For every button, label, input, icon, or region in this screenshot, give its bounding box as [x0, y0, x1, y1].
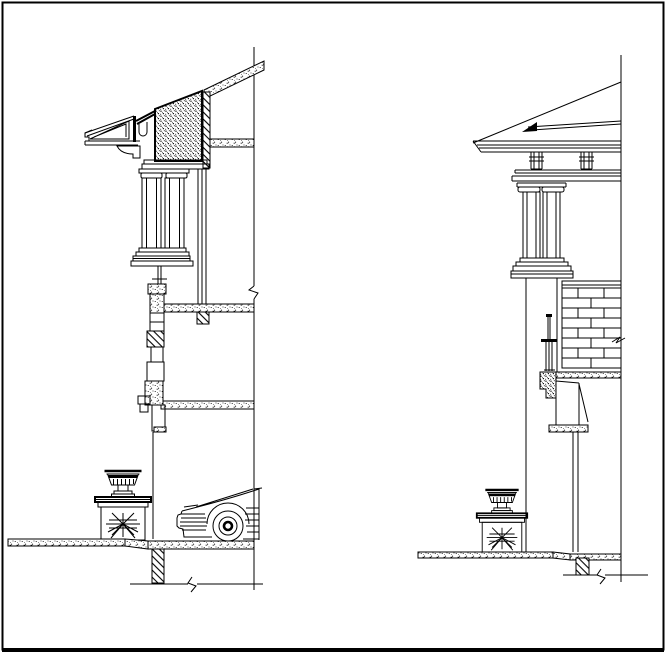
foundation-wall: [152, 549, 164, 583]
hanging-beam-block: [197, 312, 209, 324]
cad-sheet: [0, 0, 666, 654]
floor-slab-upper: [161, 304, 254, 312]
ground-ramp: [553, 552, 570, 560]
ground-slab-right: [148, 541, 254, 549]
sill-band: [549, 425, 588, 432]
fascia-face: [133, 116, 136, 142]
foundation-wall: [576, 558, 589, 575]
floor-slab-lower: [161, 401, 254, 409]
drawing-canvas: [0, 0, 666, 654]
ground-slab-left: [8, 539, 125, 546]
slab-band: [553, 372, 621, 378]
wall-hatch-strip: [203, 92, 210, 168]
ceiling-slab: [210, 139, 254, 147]
ground-slab-left: [418, 552, 553, 558]
